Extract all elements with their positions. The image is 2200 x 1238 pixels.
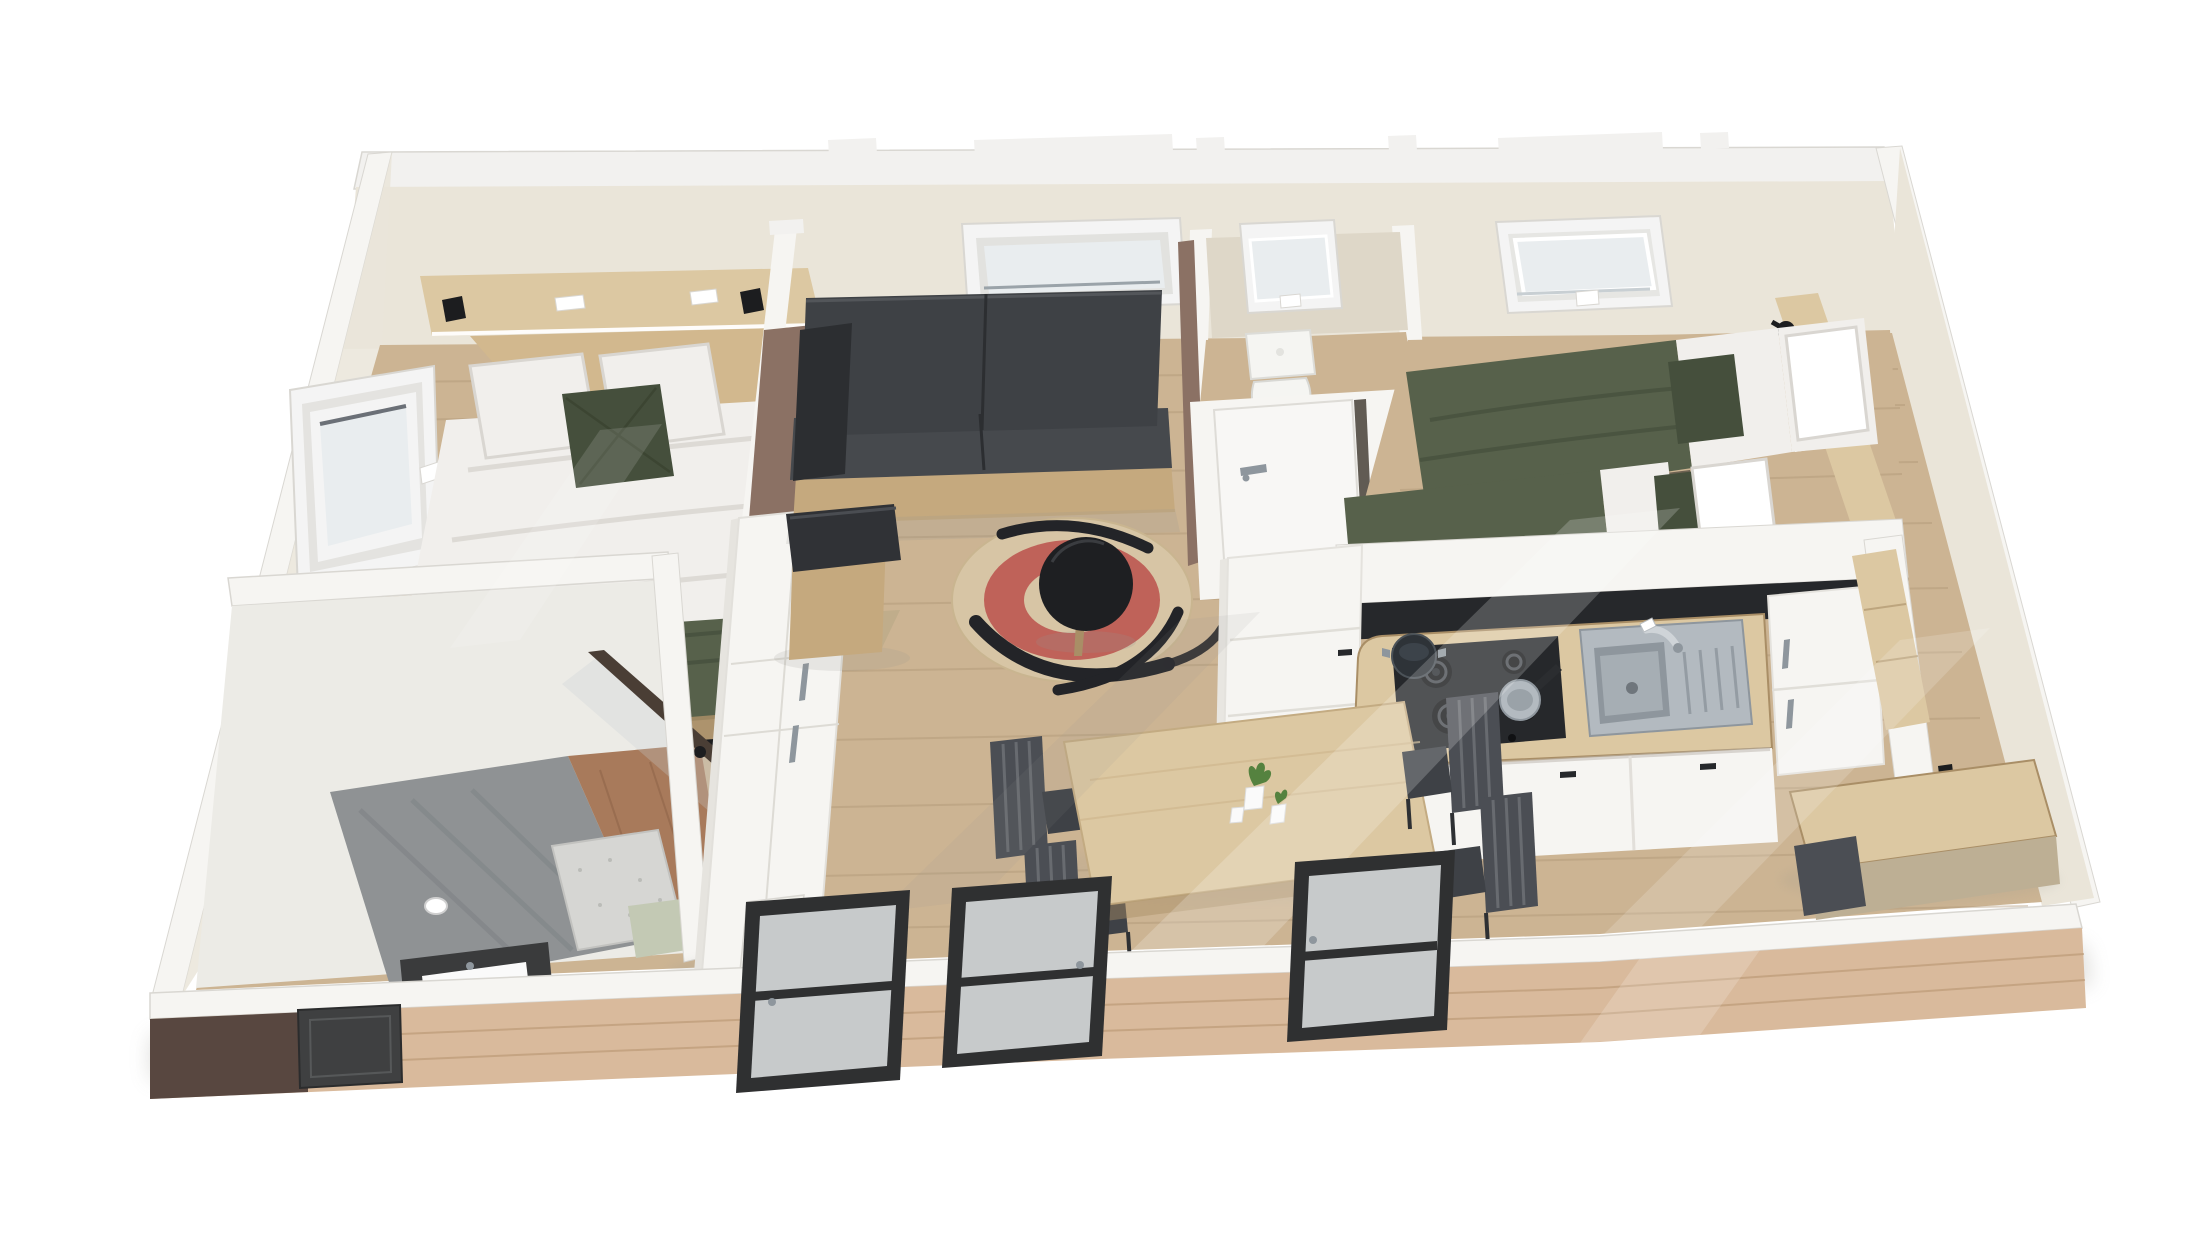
sofa [786, 290, 1180, 544]
shelf-card [555, 295, 585, 311]
side-table [1036, 537, 1136, 656]
shower-drain [425, 898, 447, 914]
side-window [290, 366, 440, 590]
glass-handle [694, 746, 706, 758]
shelf-card [690, 289, 718, 305]
reading-lamp [442, 296, 466, 322]
wall-tab [1388, 135, 1417, 152]
door-handle [1076, 961, 1084, 969]
bathroom-ext-window [298, 1005, 402, 1088]
basin-tap [466, 962, 474, 970]
wall-tab [828, 138, 877, 156]
cabinet-handle [1338, 649, 1352, 656]
sofa-side-cushion [793, 323, 852, 481]
entry-door [736, 890, 910, 1093]
window-handle [1576, 290, 1599, 306]
wc-window [1240, 220, 1342, 313]
sink-drain [1626, 682, 1638, 694]
floorplan-render: 3D cutaway floor-plan render of a two-be… [0, 0, 2200, 1238]
wall-tab [1196, 137, 1225, 154]
desk-stool [1794, 836, 1866, 916]
cabinet-handle [1700, 763, 1716, 770]
sink-unit [1580, 618, 1752, 736]
pillow [1786, 327, 1868, 440]
door-handle [768, 998, 776, 1006]
accent-cushion [1668, 354, 1744, 444]
cabinet-handle [1560, 771, 1576, 778]
cladding-shadow-left [150, 1012, 308, 1099]
wall-tab [1700, 132, 1729, 149]
door-handle [1309, 936, 1317, 944]
table-top [1039, 537, 1133, 631]
sliding-door [942, 876, 1112, 1068]
partition-cap [769, 219, 804, 235]
reading-lamp [740, 288, 764, 314]
window-handle [1280, 294, 1301, 308]
sliding-door [1287, 850, 1455, 1042]
screenshot-canvas: 3D cutaway floor-plan render of a two-be… [0, 0, 2200, 1238]
